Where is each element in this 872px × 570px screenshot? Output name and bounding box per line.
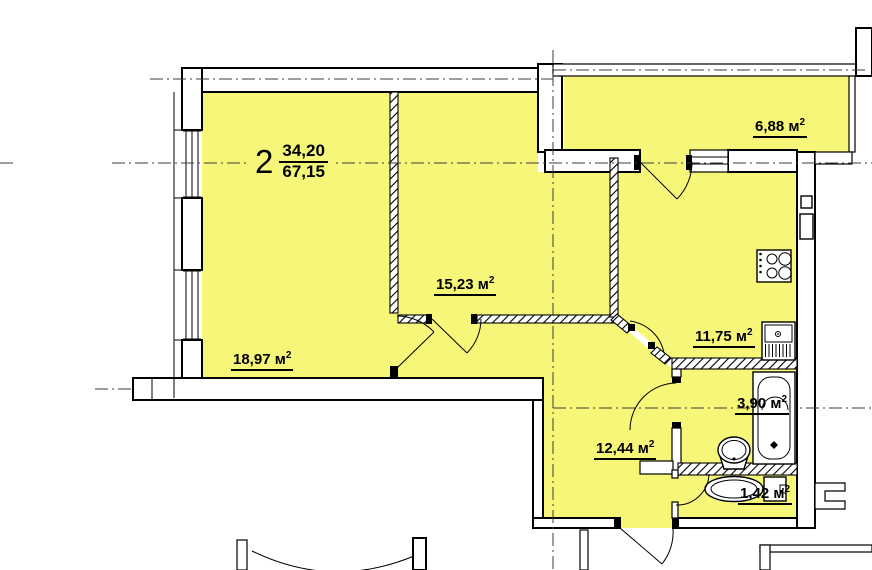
- area-label-wc: 1,42 м2: [738, 486, 792, 505]
- room-living-fill: [202, 92, 390, 378]
- window-living-2: [183, 270, 201, 340]
- kitchen-sink-icon: [762, 322, 795, 360]
- area-label-living-room: 18,97 м2: [231, 352, 293, 371]
- bathtub-icon: [753, 372, 795, 464]
- door-entrance: [620, 528, 673, 564]
- window-kitchen: [690, 150, 728, 172]
- area-label-bedroom: 15,23 м2: [434, 277, 496, 296]
- apartment-rooms-count: 2: [255, 143, 273, 181]
- area-label-balcony: 6,88 м2: [753, 119, 807, 138]
- area-label-bathroom: 3,90 м2: [735, 396, 789, 415]
- apartment-label: 2 34,20 67,15: [250, 142, 333, 181]
- apartment-total-area: 67,15: [279, 163, 328, 182]
- floor-plan: 2 34,20 67,15 18,97 м2 15,23 м2 6,88 м2 …: [0, 0, 872, 570]
- window-living-1: [183, 130, 201, 198]
- area-label-hallway: 12,44 м2: [594, 441, 656, 460]
- stove-icon: [757, 250, 791, 282]
- exterior-pilaster: [815, 483, 845, 509]
- area-label-kitchen: 11,75 м2: [693, 329, 755, 348]
- apartment-living-area: 34,20: [279, 142, 328, 163]
- balcony-parapet: [849, 76, 855, 152]
- door-neighbor-entrance: [252, 551, 414, 570]
- apartment-area-fraction: 34,20 67,15: [279, 142, 328, 181]
- washbasin-icon: [718, 437, 750, 469]
- vent-shaft-icon: [800, 196, 813, 239]
- room-balcony-fill: [564, 76, 849, 152]
